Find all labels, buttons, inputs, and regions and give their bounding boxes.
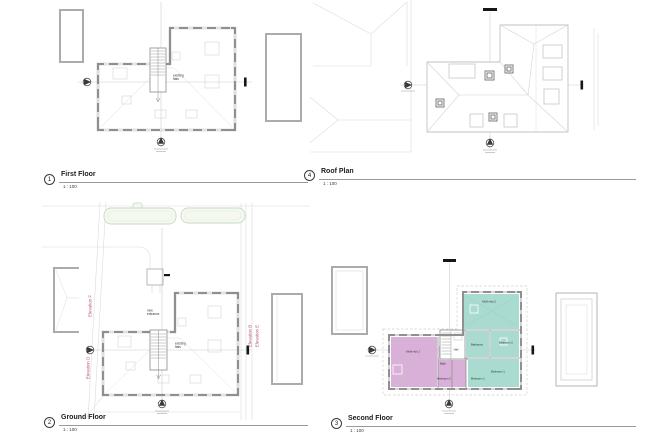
view-scale: 1 : 100 [63, 184, 77, 189]
room-label-hall: Hall [454, 348, 459, 351]
view-scale: 1 : 100 [350, 428, 364, 433]
room-label-bedroom2-apt2: Bedroom 2 [499, 341, 513, 344]
ground-floor-entrance-note: new entrance [147, 309, 159, 316]
room-label-kitliv-apt2: Kit/liv Apt 2 [482, 300, 496, 303]
ground-floor-plan [42, 202, 310, 420]
room-label-bath-apt1: Bath [440, 362, 446, 365]
elevation-label-b: Elevation B [248, 325, 253, 347]
view-scale: 1 : 100 [63, 427, 77, 432]
view-number: 2 [44, 417, 55, 428]
view-title: Ground Floor [61, 414, 106, 421]
view-title: Roof Plan [321, 168, 354, 175]
ground-floor-stair-note: existing flats [175, 342, 186, 349]
view-number: 1 [44, 174, 55, 185]
elevation-label-d: Elevation D [86, 357, 91, 380]
first-floor-stair-note: existing flats [173, 74, 184, 81]
elevation-label-f: Elevation F [88, 295, 93, 317]
view-title: Second Floor [348, 415, 393, 422]
title-underline [59, 182, 308, 183]
view-scale: 1 : 100 [323, 181, 337, 186]
room-label-bedroom2-apt1: Bedroom 2 [437, 377, 451, 380]
second-floor-plan [332, 259, 597, 414]
title-underline [319, 179, 636, 180]
view-number: 4 [304, 170, 315, 181]
roof-plan [310, 0, 598, 153]
room-label-bedroom1-apt1: Bedroom 1 [471, 377, 485, 380]
room-label-bedroom1-apt2: Bedroom 1 [491, 370, 505, 373]
sheet-linework [0, 0, 650, 437]
room-label-bathroom-apt2: Bathroom [471, 343, 483, 346]
view-title: First Floor [61, 171, 96, 178]
room-label-kitliv-apt1: Kit/liv Apt 1 [406, 350, 420, 353]
plan-sheet: 1 First Floor 1 : 100 4 Roof Plan 1 : 10… [0, 0, 650, 437]
title-underline [59, 425, 308, 426]
view-number: 3 [331, 418, 342, 429]
title-underline [346, 426, 636, 427]
elevation-label-e: Elevation E [255, 325, 260, 347]
